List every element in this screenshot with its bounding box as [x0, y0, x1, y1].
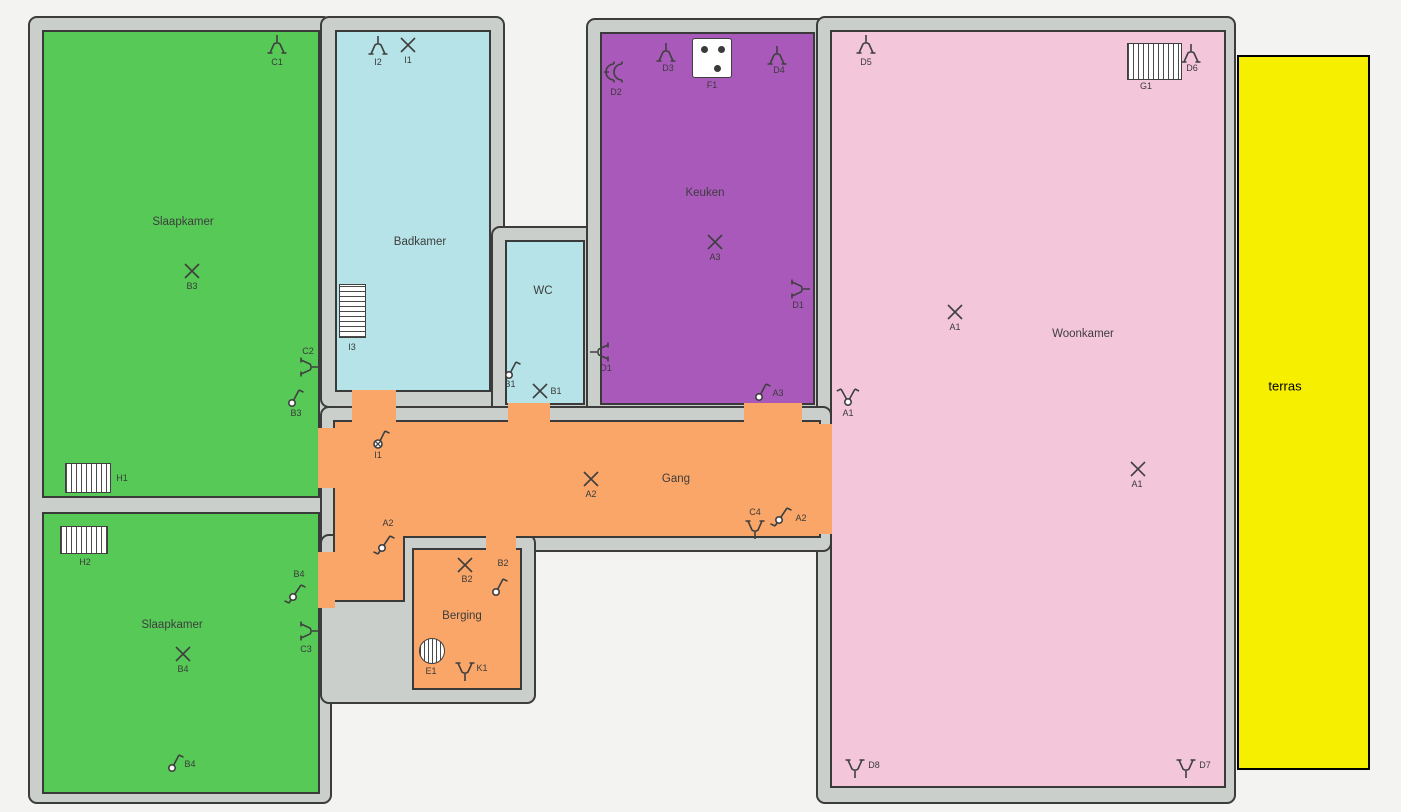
symbol-label: C2 [302, 346, 314, 356]
radiator-symbol [65, 463, 111, 493]
symbol-label: D1 [792, 300, 804, 310]
symbol-label: A1 [949, 322, 960, 332]
door-opening [508, 403, 550, 422]
wall-lamp-icon [451, 655, 479, 683]
symbol-label: A1 [1131, 479, 1142, 489]
wall-lamp-icon [841, 752, 869, 780]
switch-dual-icon [372, 532, 400, 560]
room-label-keuken: Keuken [685, 187, 724, 199]
symbol-label: B4 [184, 759, 195, 769]
switch-dual-icon [769, 504, 797, 532]
radiator-symbol [339, 284, 366, 338]
radiator-symbol [1127, 43, 1182, 80]
symbol-label: H1 [116, 473, 128, 483]
ventilator-symbol [419, 638, 445, 664]
switch-serial-icon [834, 383, 862, 411]
socket-double-icon [602, 59, 630, 87]
floor-plan: SlaapkamerSlaapkamerBadkamerWCKeukenWoon… [0, 0, 1401, 812]
symbol-label: A3 [772, 388, 783, 398]
symbol-label: B3 [186, 281, 197, 291]
symbol-label: E1 [425, 666, 436, 676]
symbol-label: B4 [177, 664, 188, 674]
room-label-slaapkamer-2: Slaapkamer [141, 619, 202, 631]
symbol-label: I3 [348, 342, 356, 352]
symbol-label: B3 [290, 408, 301, 418]
radiator-symbol [60, 526, 108, 554]
symbol-label: I2 [374, 57, 382, 67]
door-opening [318, 552, 335, 608]
symbol-label: A3 [709, 252, 720, 262]
symbol-label: F1 [707, 80, 718, 90]
door-opening [486, 536, 516, 550]
wall-lamp-icon [741, 513, 769, 541]
symbol-label: C1 [271, 57, 283, 67]
symbol-label: D2 [610, 87, 622, 97]
symbol-label: D1 [600, 363, 612, 373]
door-opening [318, 428, 335, 488]
symbol-label: D8 [868, 760, 880, 770]
symbol-label: I1 [374, 450, 382, 460]
switch-1-icon [486, 573, 514, 601]
door-opening [818, 424, 832, 534]
symbol-label: D4 [773, 65, 785, 75]
symbol-label: C4 [749, 507, 761, 517]
symbol-label: B2 [461, 574, 472, 584]
symbol-label: A1 [842, 408, 853, 418]
symbol-label: A2 [585, 489, 596, 499]
wall-lamp-icon [293, 617, 321, 645]
symbol-label: D6 [1186, 63, 1198, 73]
wall-lamp-icon [1172, 752, 1200, 780]
room-label-woonkamer: Woonkamer [1052, 328, 1114, 340]
room-label-gang: Gang [662, 473, 690, 485]
room-terras [1237, 55, 1370, 770]
room-label-berging: Berging [442, 610, 482, 622]
symbol-label: B1 [550, 386, 561, 396]
symbol-label: I1 [404, 55, 412, 65]
switch-dual-icon [283, 581, 311, 609]
wall-lamp-icon [588, 338, 616, 366]
door-opening [352, 390, 396, 422]
room-label-badkamer: Badkamer [394, 236, 446, 248]
symbol-label: B1 [504, 379, 515, 389]
symbol-label: A2 [382, 518, 393, 528]
symbol-label: G1 [1140, 81, 1152, 91]
dimmer-icon [368, 426, 396, 454]
symbol-label: B2 [497, 558, 508, 568]
symbol-label: K1 [476, 663, 487, 673]
symbol-label: B4 [293, 569, 304, 579]
symbol-label: D5 [860, 57, 872, 67]
room-label-slaapkamer-1: Slaapkamer [152, 216, 213, 228]
room-woonkamer [830, 30, 1226, 788]
symbol-label: A2 [795, 513, 806, 523]
symbol-label: H2 [79, 557, 91, 567]
room-label-terras: terras [1268, 379, 1301, 394]
symbol-label: D7 [1199, 760, 1211, 770]
stove-symbol [692, 38, 732, 78]
wall-lamp-icon [784, 275, 812, 303]
symbol-label: D3 [662, 63, 674, 73]
symbol-label: C3 [300, 644, 312, 654]
room-label-wc: WC [533, 285, 552, 297]
wall-lamp-icon [293, 353, 321, 381]
